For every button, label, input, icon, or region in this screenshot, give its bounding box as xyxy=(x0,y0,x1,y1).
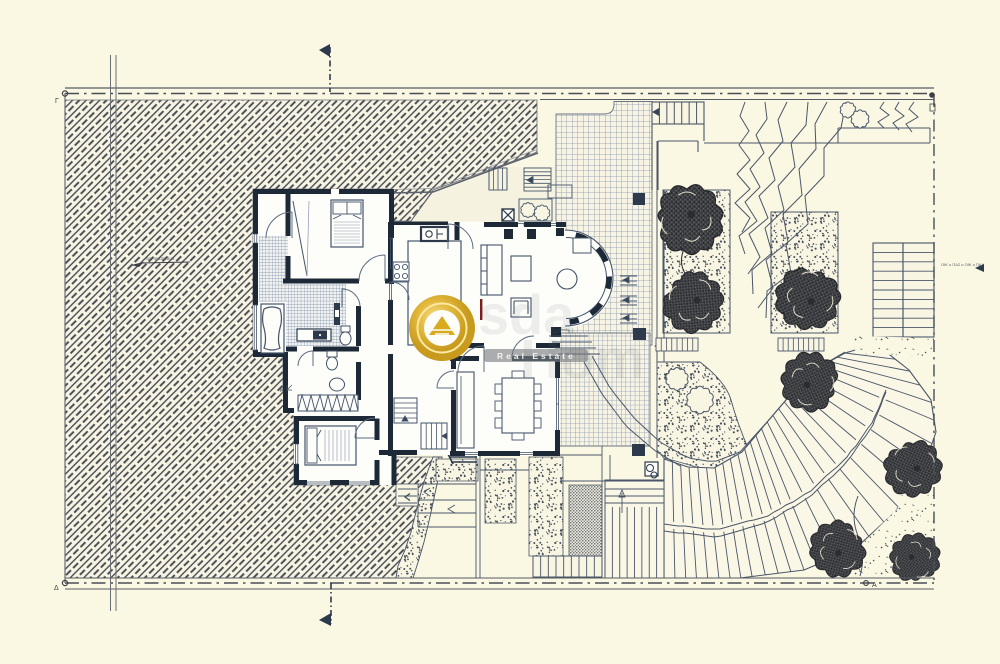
svg-text:Real Estate: Real Estate xyxy=(497,351,576,361)
svg-text:A: A xyxy=(872,582,877,589)
svg-text:Γ: Γ xyxy=(55,98,59,105)
svg-text:ΟΙΚ ο ΠΔ2 ο ΟΙΚ ο ΠΔ4: ΟΙΚ ο ΠΔ2 ο ΟΙΚ ο ΠΔ4 xyxy=(941,262,984,267)
svg-text:k: k xyxy=(280,387,284,394)
svg-text:ορ. οικοπεδου: ορ. οικοπεδου xyxy=(146,256,175,261)
svg-text:Δ: Δ xyxy=(54,585,59,592)
